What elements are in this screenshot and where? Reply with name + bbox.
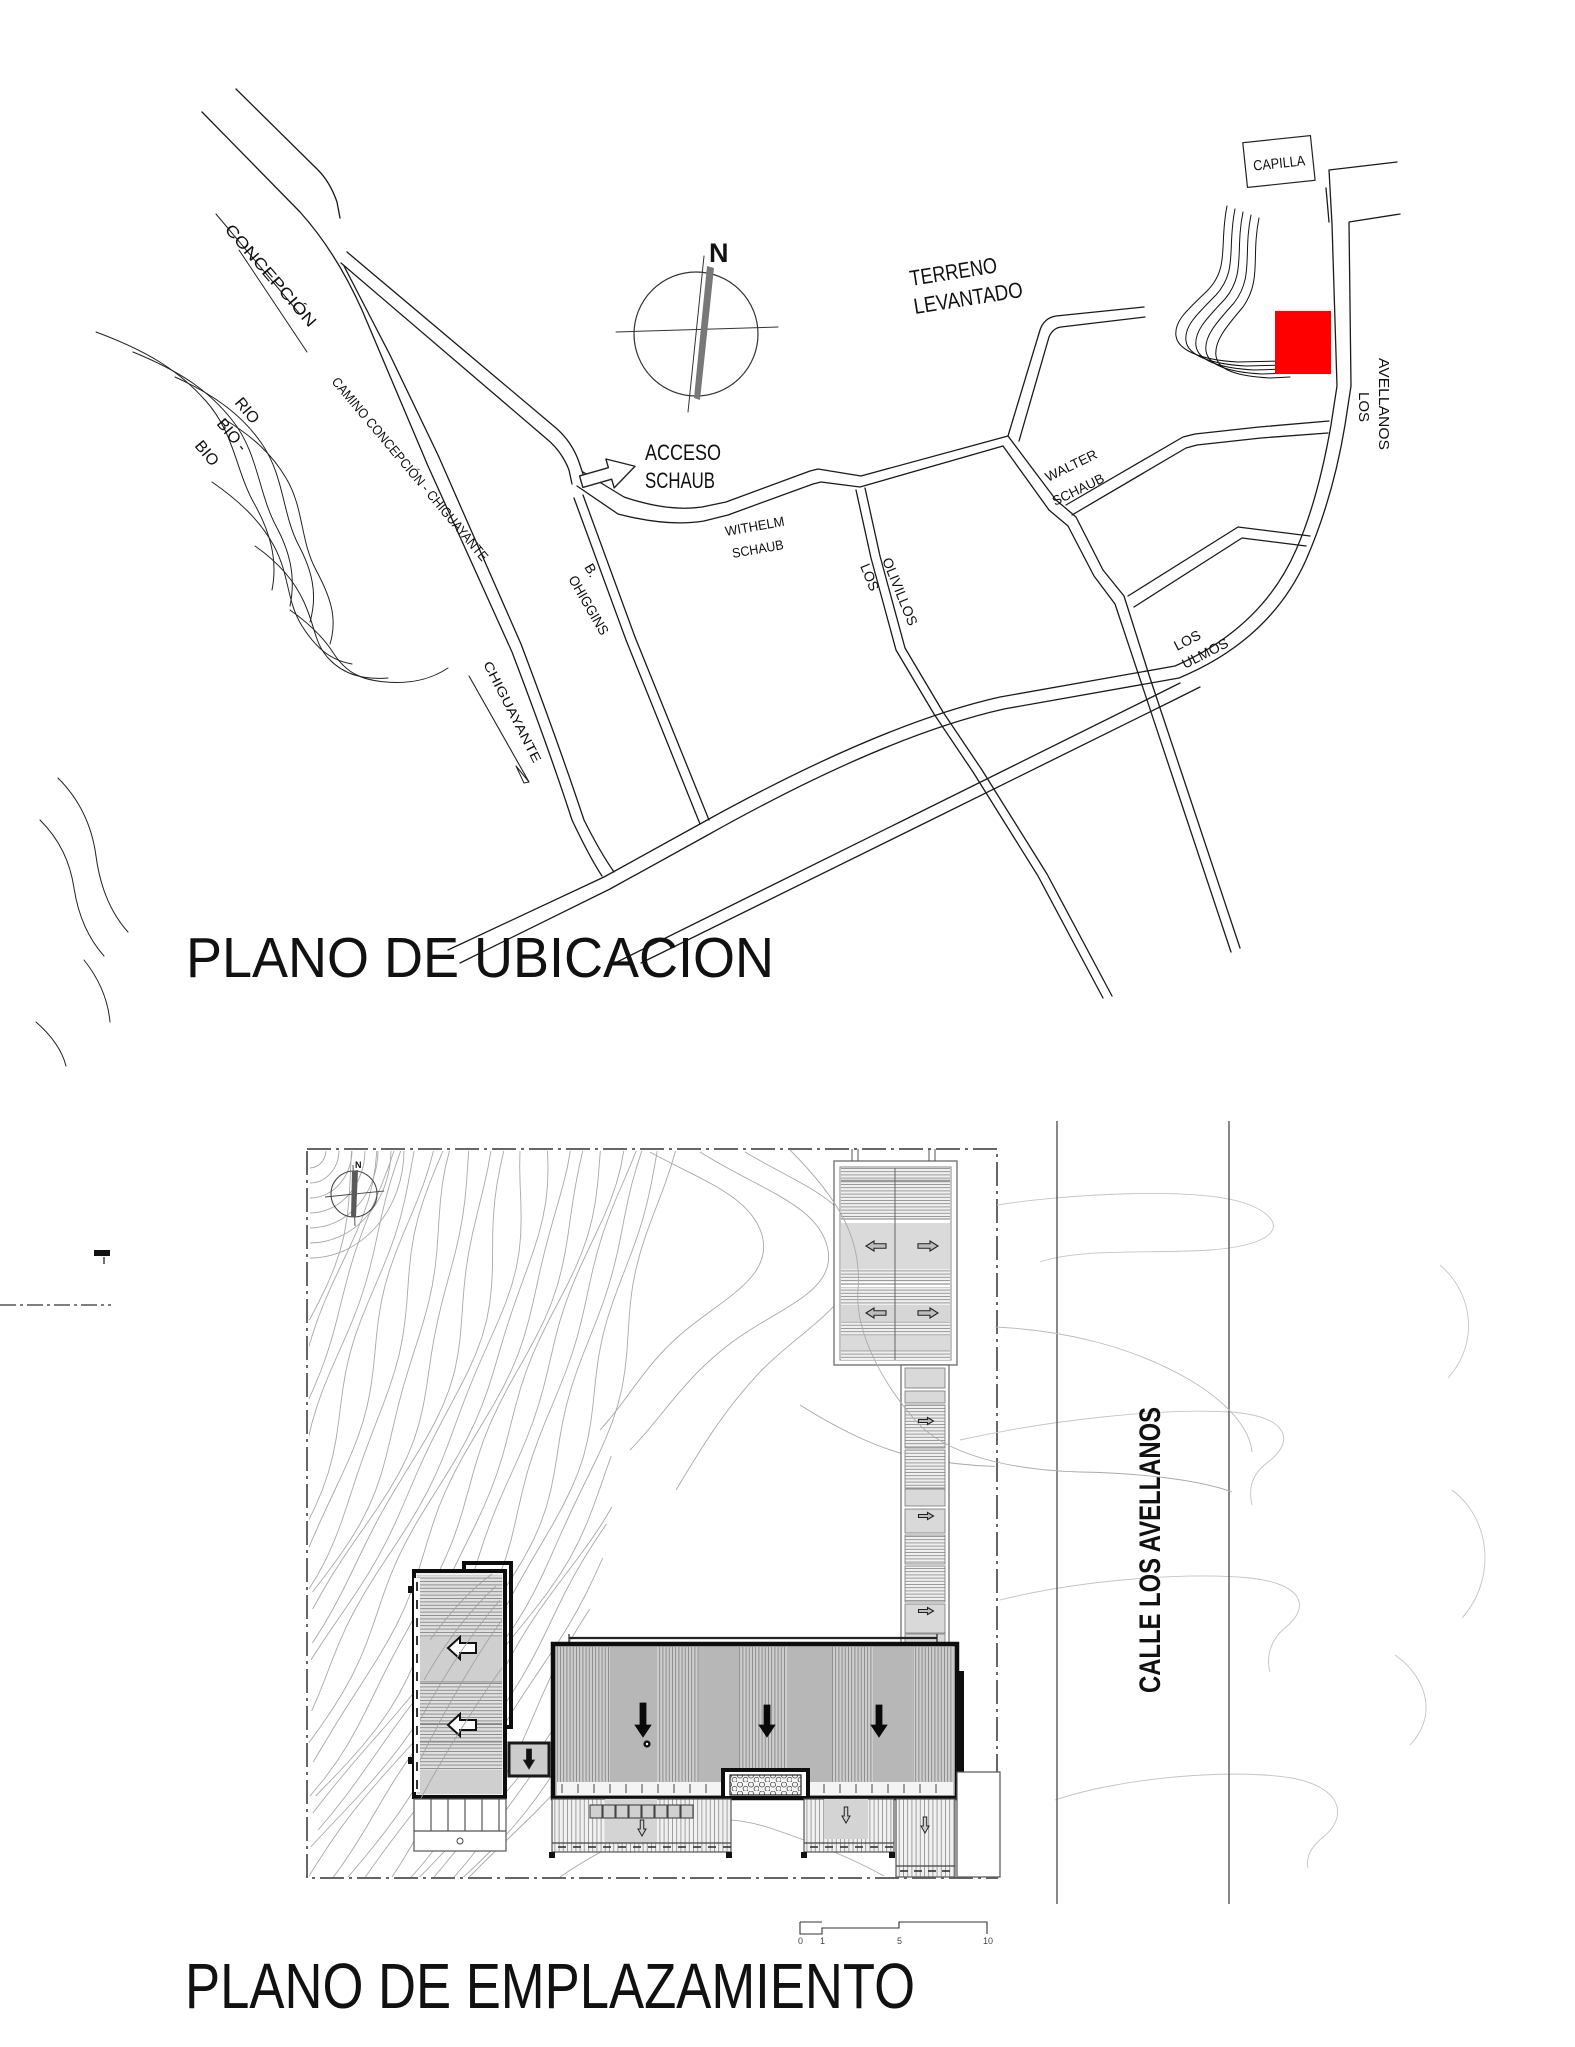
svg-text:AVELLANOS: AVELLANOS [1375,358,1392,450]
svg-text:SCHAUB: SCHAUB [645,468,715,493]
svg-text:PLANO DE EMPLAZAMIENTO: PLANO DE EMPLAZAMIENTO [185,1950,915,2022]
svg-text:1: 1 [820,1936,825,1946]
svg-text:10: 10 [983,1936,993,1946]
svg-text:CALLE LOS AVELLANOS: CALLE LOS AVELLANOS [1134,1407,1167,1693]
svg-text:0: 0 [798,1936,803,1946]
svg-text:ACCESO: ACCESO [645,440,721,465]
svg-text:N: N [355,1160,362,1170]
svg-text:N: N [709,238,729,268]
svg-text:PLANO DE UBICACION: PLANO DE UBICACION [186,926,774,990]
svg-text:5: 5 [897,1936,902,1946]
svg-text:LOS: LOS [1355,392,1372,422]
